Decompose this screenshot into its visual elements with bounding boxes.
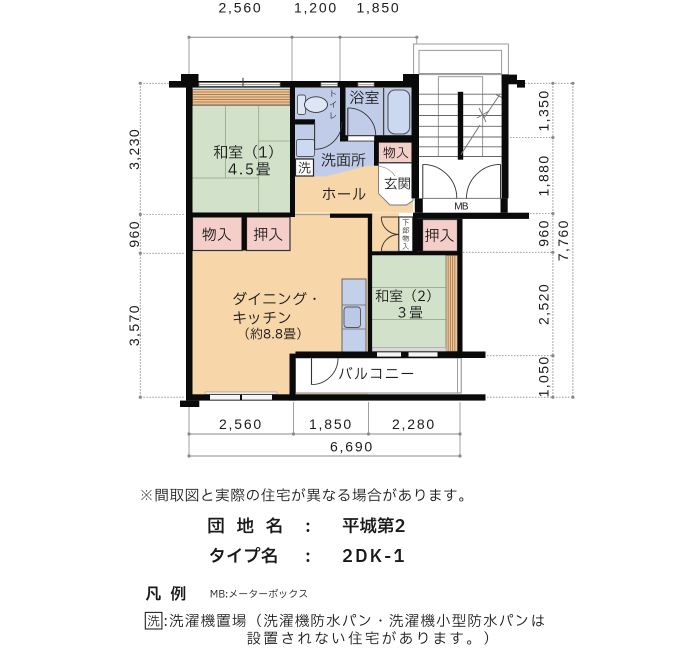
svg-text:玄関: 玄関 [384,175,411,195]
svg-text:2,280: 2,280 [392,416,436,432]
svg-text:MB:メーターボックス: MB:メーターボックス [210,588,308,603]
svg-text:団地名: 団地名 [207,513,294,540]
svg-text:洗: 洗 [298,159,311,179]
svg-text:押入: 押入 [424,225,454,248]
svg-text:押入: 押入 [253,224,283,247]
svg-text:1,050: 1,050 [536,355,552,397]
svg-text:4.5畳: 4.5畳 [228,159,272,182]
svg-text:設置されない住宅があります。）: 設置されない住宅があります。） [247,630,501,650]
svg-text:1,880: 1,880 [536,154,552,196]
svg-text:7,760: 7,760 [555,219,571,261]
svg-text:1,850: 1,850 [309,416,353,432]
svg-text:2,560: 2,560 [218,0,262,16]
svg-text:凡例: 凡例 [145,584,195,608]
svg-text:6,690: 6,690 [330,439,374,455]
svg-text:レ: レ [329,111,337,123]
svg-text:浴室: 浴室 [349,87,379,110]
svg-text:1,850: 1,850 [356,0,400,16]
svg-text:2DK-1: 2DK-1 [342,543,406,570]
svg-text:洗面所: 洗面所 [321,150,366,173]
svg-text:2,520: 2,520 [536,283,552,325]
svg-text:バルコニー: バルコニー [338,365,416,386]
svg-text:ホール: ホール [321,184,366,207]
svg-text:（約8.8畳）: （約8.8畳） [237,325,309,345]
svg-text:3,230: 3,230 [126,128,142,170]
svg-text::: : [305,543,311,570]
svg-text:1,350: 1,350 [536,89,552,131]
svg-text:平城第2: 平城第2 [342,513,406,540]
svg-text:MB: MB [454,202,469,213]
svg-text:物入: 物入 [202,224,232,247]
svg-text:960: 960 [126,220,142,248]
svg-text:タイプ名: タイプ名 [208,543,278,570]
svg-text:2,560: 2,560 [219,416,263,432]
svg-text:3,570: 3,570 [126,304,142,346]
svg-text:３畳: ３畳 [395,304,423,325]
svg-text:※間取図と実際の住宅が異なる場合があります。: ※間取図と実際の住宅が異なる場合があります。 [139,487,473,508]
svg-text:洗: 洗 [147,613,160,632]
svg-text:960: 960 [536,219,552,247]
svg-text:物入: 物入 [383,143,409,163]
svg-text::: : [305,513,311,540]
svg-text:1,200: 1,200 [294,0,338,16]
svg-text:入: 入 [402,243,409,253]
